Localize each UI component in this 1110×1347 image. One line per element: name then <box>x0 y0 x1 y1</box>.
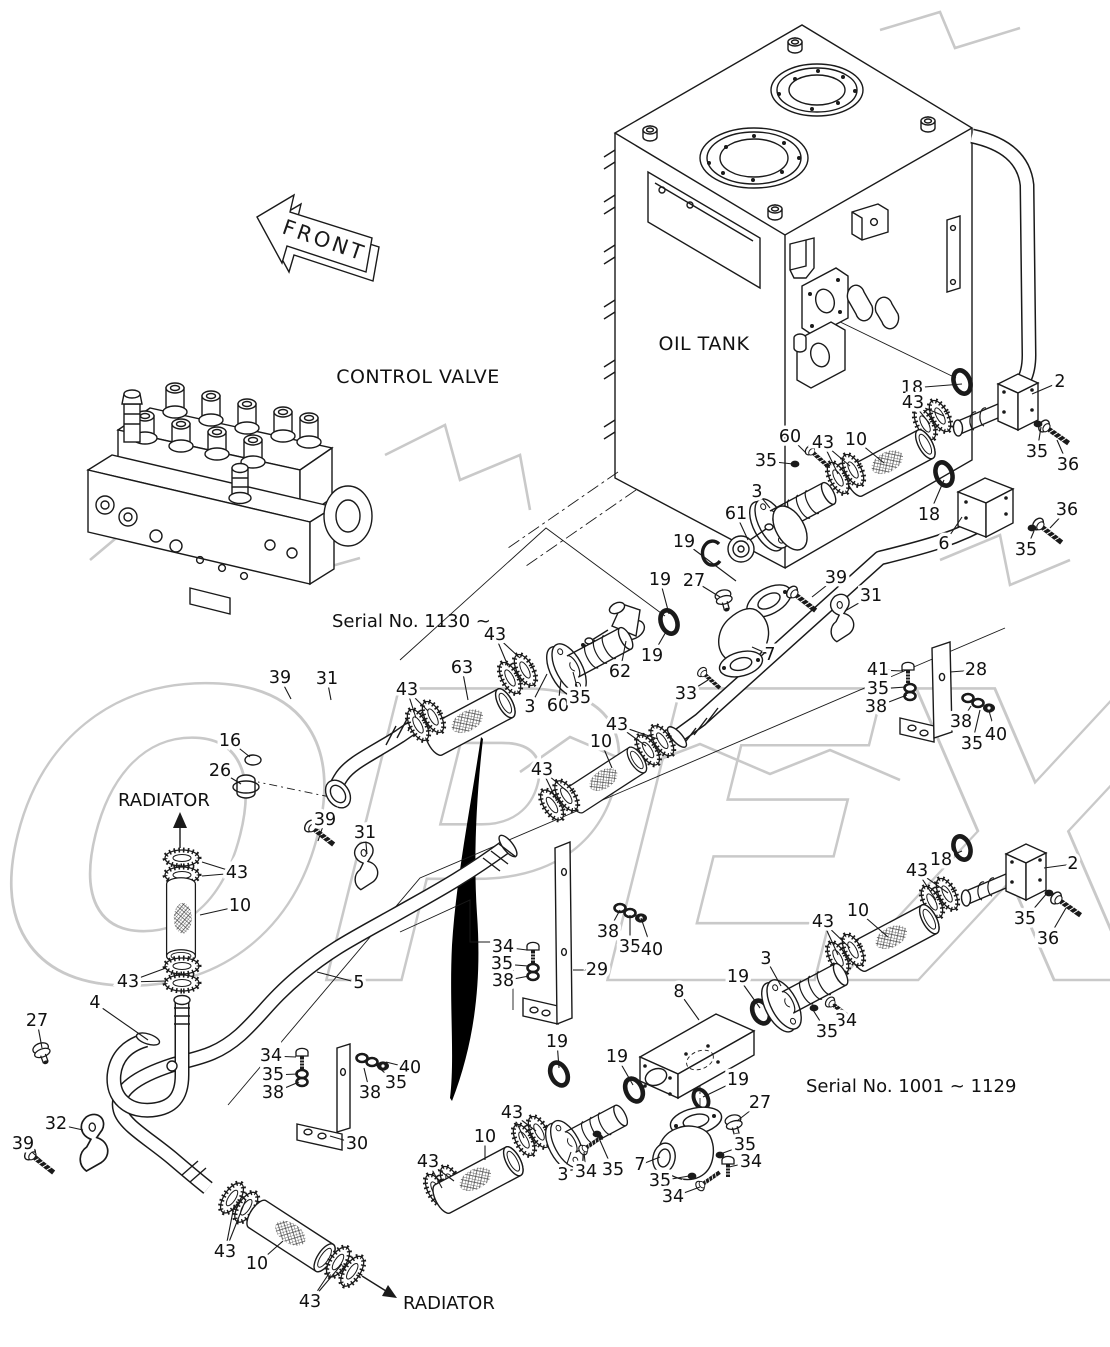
part-callout-29: 29 <box>586 960 608 980</box>
part-callout-60: 60 <box>779 427 801 447</box>
part-callout-10: 10 <box>847 901 869 921</box>
tank-port-flanges <box>794 268 899 388</box>
part-callout-36: 36 <box>1056 500 1078 520</box>
part-callout-39: 39 <box>12 1134 34 1154</box>
part-callout-40: 40 <box>641 940 663 960</box>
part-callout-31: 31 <box>316 669 338 689</box>
part-callout-10: 10 <box>474 1127 496 1147</box>
tank-slotted-bar <box>947 216 960 292</box>
part-callout-19: 19 <box>727 1070 749 1090</box>
part-callout-60: 60 <box>547 696 569 716</box>
tank-flange-large <box>700 128 808 188</box>
part-callout-38: 38 <box>359 1083 381 1103</box>
part-callout-62: 62 <box>609 662 631 682</box>
part-callout-38: 38 <box>597 922 619 942</box>
part-callout-41: 41 <box>867 660 889 680</box>
part-callout-6: 6 <box>938 534 949 554</box>
part-callout-27: 27 <box>26 1011 48 1031</box>
part-callout-30: 30 <box>346 1134 368 1154</box>
block-6 <box>958 478 1013 537</box>
part-callout-10: 10 <box>845 430 867 450</box>
part-callout-8: 8 <box>673 982 684 1002</box>
part-callout-43: 43 <box>484 625 506 645</box>
part-callout-3: 3 <box>751 482 762 502</box>
exploded-parts-diagram: OPEX <box>0 0 1110 1343</box>
part-callout-26: 26 <box>209 761 231 781</box>
part-callout-19: 19 <box>673 532 695 552</box>
part-callout-43: 43 <box>417 1152 439 1172</box>
part-callout-19: 19 <box>546 1032 568 1052</box>
assembly-lower-left <box>22 1041 397 1298</box>
part-callout-3: 3 <box>760 949 771 969</box>
tank-flange-small <box>771 64 863 116</box>
part-callout-38: 38 <box>262 1083 284 1103</box>
part-callout-36: 36 <box>1057 455 1079 475</box>
part-callout-19: 19 <box>649 570 671 590</box>
control-valve-drawing <box>88 383 372 614</box>
part-callout-38: 38 <box>865 697 887 717</box>
front-arrow: FRONT <box>257 195 379 281</box>
part-callout-19: 19 <box>727 967 749 987</box>
part-callout-33: 33 <box>675 684 697 704</box>
part-callout-43: 43 <box>396 680 418 700</box>
part-callout-2: 2 <box>1067 854 1078 874</box>
part-callout-35: 35 <box>602 1160 624 1180</box>
part-callout-27: 27 <box>749 1093 771 1113</box>
part-callout-10: 10 <box>246 1254 268 1274</box>
part-callout-34: 34 <box>575 1162 597 1182</box>
part-callout-38: 38 <box>950 712 972 732</box>
part-callout-35: 35 <box>816 1022 838 1042</box>
part-callout-35: 35 <box>1026 442 1048 462</box>
part-callout-5: 5 <box>353 973 364 993</box>
part-callout-35: 35 <box>755 451 777 471</box>
part-callout-10: 10 <box>229 896 251 916</box>
serial-upper-label: Serial No. 1130 ~ <box>332 611 491 632</box>
part-callout-19: 19 <box>606 1047 628 1067</box>
part-callout-35: 35 <box>867 679 889 699</box>
part-callout-27: 27 <box>683 571 705 591</box>
part-callout-43: 43 <box>906 861 928 881</box>
part-callout-4: 4 <box>89 993 100 1013</box>
part-callout-7: 7 <box>634 1155 645 1175</box>
part-callout-35: 35 <box>961 734 983 754</box>
part-callout-28: 28 <box>965 660 987 680</box>
part-callout-2: 2 <box>1054 372 1065 392</box>
part-callout-3: 3 <box>557 1165 568 1185</box>
part-callout-43: 43 <box>812 912 834 932</box>
control-valve-label: CONTROL VALVE <box>336 366 500 388</box>
part-callout-34: 34 <box>662 1187 684 1207</box>
part-callout-43: 43 <box>299 1292 321 1312</box>
radiator-left-label: RADIATOR <box>118 790 210 811</box>
part-callout-10: 10 <box>590 732 612 752</box>
tank-clip <box>790 238 814 278</box>
part-callout-61: 61 <box>725 504 747 524</box>
part-callout-63: 63 <box>451 658 473 678</box>
part-callout-39: 39 <box>825 568 847 588</box>
part-callout-39: 39 <box>269 668 291 688</box>
part-callout-31: 31 <box>860 586 882 606</box>
part-callout-35: 35 <box>1014 909 1036 929</box>
part-callout-7: 7 <box>764 645 775 665</box>
radiator-down-arrow <box>382 1285 397 1298</box>
part-callout-43: 43 <box>531 760 553 780</box>
part-callout-18: 18 <box>918 505 940 525</box>
oil-tank-label: OIL TANK <box>659 333 750 355</box>
part-callout-40: 40 <box>985 725 1007 745</box>
part-callout-35: 35 <box>619 937 641 957</box>
part-callout-39: 39 <box>314 810 336 830</box>
part-callout-35: 35 <box>262 1065 284 1085</box>
serial-lower-label: Serial No. 1001 ~ 1129 <box>806 1076 1016 1097</box>
part-callout-3: 3 <box>524 697 535 717</box>
plug-26 <box>233 775 259 798</box>
part-callout-35: 35 <box>385 1073 407 1093</box>
part-callout-43: 43 <box>214 1242 236 1262</box>
radiator-bottom-label: RADIATOR <box>403 1293 495 1314</box>
part-callout-32: 32 <box>45 1114 67 1134</box>
part-callout-35: 35 <box>569 688 591 708</box>
elbow-7-lower <box>650 1103 724 1180</box>
part-callout-43: 43 <box>226 863 248 883</box>
part-callout-34: 34 <box>260 1046 282 1066</box>
part-callout-43: 43 <box>117 972 139 992</box>
part-callout-35: 35 <box>1015 540 1037 560</box>
part-callout-18: 18 <box>930 850 952 870</box>
part-callout-31: 31 <box>354 823 376 843</box>
part-callout-34: 34 <box>740 1152 762 1172</box>
part-callout-43: 43 <box>902 393 924 413</box>
part-callout-38: 38 <box>492 971 514 991</box>
part-callout-34: 34 <box>835 1011 857 1031</box>
part-callout-19: 19 <box>641 646 663 666</box>
part-callout-43: 43 <box>812 433 834 453</box>
parts-diagram-page: OPEX <box>0 0 1110 1343</box>
part-callout-36: 36 <box>1037 929 1059 949</box>
part-callout-16: 16 <box>219 731 241 751</box>
part-callout-43: 43 <box>501 1103 523 1123</box>
